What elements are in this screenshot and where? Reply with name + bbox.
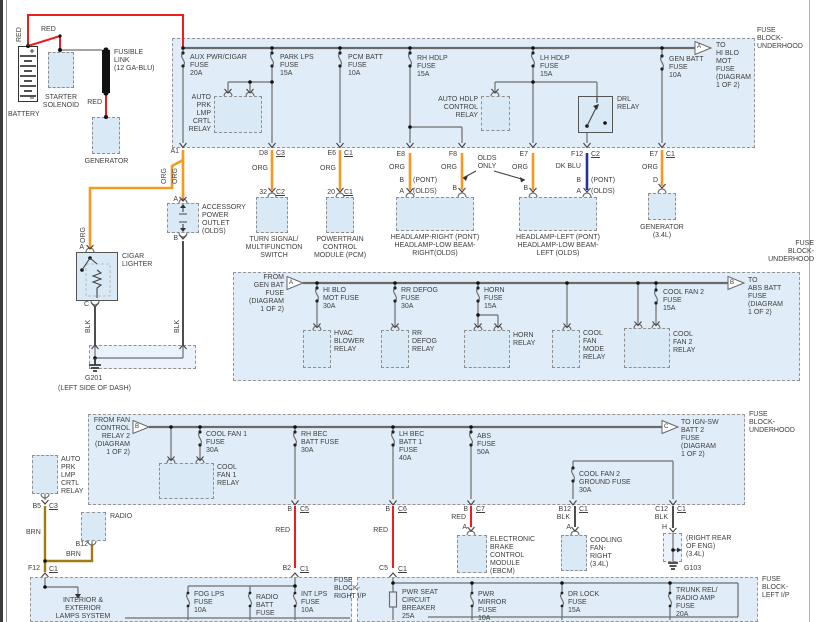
ebcm-label: ELECTRONIC BRAKE CONTROL MODULE (EBCM) <box>490 536 535 576</box>
dkblu-label: DK BLU <box>548 163 581 171</box>
pin-hr-olds: (OLDS) <box>413 188 437 196</box>
red-label-2: RED <box>366 527 388 535</box>
g201-ground-symbol <box>89 358 101 371</box>
pin-32: 32 <box>252 189 267 197</box>
pin-e8: E8 <box>386 151 405 159</box>
offpage-ign-sw: TO IGN-SW BATT 2 FUSE (DIAGRAM 1 OF 2) <box>681 419 719 459</box>
fuse-mirror-label: PWR MIRROR FUSE 10A <box>478 591 506 622</box>
g103-location-label: (RIGHT REAR OF ENG) (3.4L) <box>686 535 731 559</box>
cigar-pin-c: C <box>79 301 89 309</box>
pin-c5: C5 <box>300 506 309 514</box>
pin-e7-gen: E7 <box>638 151 658 159</box>
top-block-title: FUSE BLOCK- UNDERHOOD <box>757 27 803 51</box>
pin-a1: A1 <box>164 148 179 156</box>
blk-label-fan: BLK <box>548 514 570 522</box>
pin-hr-b: B <box>392 177 404 185</box>
battery-symbol <box>20 43 36 98</box>
g103-ground-symbol <box>668 563 678 569</box>
fuse-lock-label: DR LOCK FUSE 15A <box>568 591 599 615</box>
pin-hl-a: A <box>569 188 581 196</box>
auto-hdlp-relay-label: AUTO HDLP CONTROL RELAY <box>428 96 478 120</box>
battery-label: BATTERY <box>8 111 40 119</box>
outlet-pin-a: A <box>168 196 178 204</box>
pin-20: 20 <box>320 189 335 197</box>
cool-fan1-relay-label: COOL FAN 1 RELAY <box>217 464 239 488</box>
mid-block-title: FUSE BLOCK- UNDERHOOD <box>744 240 814 264</box>
fusible-link-label: FUSIBLE LINK (12 GA-BLU) <box>114 49 154 73</box>
headlamp-left-label: HEADLAMP-LEFT (PONT) HEADLAMP-LOW BEAM- … <box>497 234 619 258</box>
pin-c7: C7 <box>476 506 485 514</box>
generator-label: GENERATOR <box>79 158 134 166</box>
red-label-1: RED <box>268 527 290 535</box>
pin-b-c6: B <box>376 506 390 514</box>
pin-a-ebcm: A <box>455 524 467 532</box>
junction-dots <box>26 34 675 588</box>
right-ip-title: FUSE BLOCK- RIGHT I/P <box>334 577 366 601</box>
org-label-e8: ORG <box>377 164 405 172</box>
fuse-park-label: PARK LPS FUSE 15A <box>280 54 314 78</box>
pin-b12-fan: B12 <box>552 506 571 514</box>
cool-fan2-relay-label: COOL FAN 2 RELAY <box>673 331 695 355</box>
interior-lamps-label: INTERIOR & EXTERIOR LAMPS SYSTEM <box>47 597 119 621</box>
rr-defog-relay-label: RR DEFOG RELAY <box>412 330 437 354</box>
fuse-gen-label: GEN BATT FUSE 10A <box>669 56 703 80</box>
cigar-lighter-label: CIGAR LIGHTER <box>122 253 152 269</box>
generator34-label: GENERATOR (3.4L) <box>629 224 695 240</box>
pin-b5: B5 <box>27 503 41 511</box>
fuse-pcm-label: PCM BATT FUSE 10A <box>348 54 383 78</box>
auto-prk-relay-label: AUTO PRK LMP CRTL RELAY <box>171 94 211 134</box>
pin-c12: C12 <box>649 506 668 514</box>
turn-signal-label: TURN SIGNAL/ MULTIFUNCTION SWITCH <box>243 236 305 260</box>
pin-c12-c1: C1 <box>677 506 686 514</box>
cigar-pin-a: A <box>74 244 84 252</box>
fuse-rh-bec-label: RH BEC BATT FUSE 30A <box>301 431 339 455</box>
pin-b2-c1: C1 <box>300 566 309 574</box>
cigar-lighter-symbol <box>80 256 110 298</box>
pin-f8-b: B <box>445 185 457 193</box>
red-label-battery: RED <box>16 27 24 42</box>
brn-wires <box>45 506 92 572</box>
pin-f12-brn: F12 <box>26 565 40 573</box>
radio-label: RADIO <box>110 513 132 521</box>
fuse-fog-label: FOG LPS FUSE 10A <box>194 591 224 615</box>
olds-only-label: OLDS ONLY <box>472 155 502 171</box>
hvac-relay-label: HVAC BLOWER RELAY <box>334 330 364 354</box>
bot-arrow-in-letter: B <box>135 424 139 431</box>
fuse-radio-label: RADIO BATT FUSE <box>256 594 278 618</box>
bot-from-label: FROM FAN CONTROL RELAY 2 (DIAGRAM 1 OF 2… <box>84 417 130 457</box>
drl-relay-label: DRL RELAY <box>617 96 639 112</box>
red-label-3: RED <box>444 514 466 522</box>
fuse-lh-bec-label: LH BEC BATT 1 FUSE 40A <box>399 431 424 463</box>
org-label-v1: ORG <box>161 168 169 184</box>
pin-b2: B2 <box>275 565 291 573</box>
org-label-f8: ORG <box>429 164 457 172</box>
outlet-pin-symbols <box>179 204 187 232</box>
g201-label: G201 <box>85 375 102 383</box>
pin-e6-c1: C1 <box>344 150 353 158</box>
left-ip-title: FUSE BLOCK- LEFT I/P <box>762 576 790 600</box>
mid-arrow-in-letter: A <box>289 280 293 287</box>
pin-e7-gen-c1: C1 <box>666 151 675 159</box>
fuse-rh-label: RH HDLP FUSE 15A <box>417 55 448 79</box>
org-label-d8: ORG <box>240 165 268 173</box>
fuse-cf1-label: COOL FAN 1 FUSE 30A <box>206 431 247 455</box>
red-label-solenoid: RED <box>41 26 56 34</box>
fuse-cf2-label: COOL FAN 2 FUSE 15A <box>663 289 704 313</box>
org-label-e6: ORG <box>308 165 336 173</box>
offpage-hi-blo: TO HI BLO MOT FUSE (DIAGRAM 1 OF 2) <box>716 42 751 90</box>
pin-20-c1: C1 <box>344 189 353 197</box>
red-label-link: RED <box>84 99 102 107</box>
pin-gen-d: D <box>646 177 658 185</box>
org-label-v2: ORG <box>172 168 180 184</box>
bot-arrow-out-letter: C <box>664 424 668 431</box>
offpage-abs-batt: TO ABS BATT FUSE (DIAGRAM 1 OF 2) <box>748 277 783 317</box>
pin-e7: E7 <box>509 151 528 159</box>
pin-b12-radio: B12 <box>71 541 88 549</box>
fuse-defog-label: RR DEFOG FUSE 30A <box>401 287 438 311</box>
gray-wires <box>45 48 738 620</box>
fuse-horn-label: HORN FUSE 15A <box>484 287 505 311</box>
fuse-hiblo-label: HI BLO MOT FUSE 30A <box>323 287 359 311</box>
headlamp-right-label: HEADLAMP-RIGHT (PONT) HEADLAMP-LOW BEAM-… <box>374 234 496 258</box>
starter-solenoid-label: STARTER SOLENOID <box>36 94 86 110</box>
pin-h: H <box>655 524 667 532</box>
org-label-gen: ORG <box>630 164 658 172</box>
brn-label-2: BRN <box>66 551 81 559</box>
pin-c5b-c1: C1 <box>398 566 407 574</box>
brn-label-1: BRN <box>26 529 41 537</box>
pin-c6: C6 <box>398 506 407 514</box>
pin-e6: E6 <box>317 150 336 158</box>
pin-f12: F12 <box>563 151 583 159</box>
connector-arcs <box>41 92 666 545</box>
mid-from-label: FROM GEN BAT FUSE (DIAGRAM 1 OF 2) <box>234 274 284 314</box>
pin-b12-c1: C1 <box>579 506 588 514</box>
outlet-pin-b: B <box>168 235 178 243</box>
pin-c3: C3 <box>276 150 285 158</box>
pin-hr-pont: (PONT) <box>413 177 437 185</box>
org-label-cigar: ORG <box>80 227 88 243</box>
pin-b-c5: B <box>278 506 292 514</box>
fuse-abs-label: ABS FUSE 50A <box>477 433 496 457</box>
fusible-link-bar <box>102 47 110 95</box>
wiring-diagram: BATTERY RED RED RED STARTER SOLENOID FUS… <box>0 0 817 622</box>
fuse-trunk-label: TRUNK REL/ RADIO AMP FUSE 20A <box>676 587 718 619</box>
fuse-int-label: INT LPS FUSE 10A <box>301 591 327 615</box>
offpage-letter-a: A <box>697 44 701 51</box>
olds-only-arrows <box>463 171 525 183</box>
blk-label-g103: BLK <box>646 514 668 522</box>
breaker-seat-label: PWR SEAT CIRCUIT BREAKER 25A <box>402 589 438 621</box>
g103-label: G103 <box>684 565 701 573</box>
mid-arrow-out-letter: B <box>730 280 734 287</box>
org-label-e7: ORG <box>500 164 528 172</box>
pcm-label: POWERTRAIN CONTROL MODULE (PCM) <box>309 236 371 260</box>
pin-e7-b: B <box>516 185 528 193</box>
cool-fan-mode-relay-label: COOL FAN MODE RELAY <box>583 330 605 362</box>
drl-relay-symbol <box>585 96 607 128</box>
g201-location-label: (LEFT SIDE OF DASH) <box>58 385 131 393</box>
pin-f8: F8 <box>438 151 457 159</box>
bot-block-title: FUSE BLOCK- UNDERHOOD <box>749 411 795 435</box>
cooling-fan-label: COOLING FAN- RIGHT (3.4L) <box>590 537 622 569</box>
horn-relay-label: HORN RELAY <box>513 332 535 348</box>
fuse-lh-label: LH HDLP FUSE 15A <box>540 55 570 79</box>
auto-prk-relay2-label: AUTO PRK LMP CRTL RELAY <box>61 456 83 496</box>
pin-a-fan: A <box>559 524 571 532</box>
pin-c2: C2 <box>276 189 285 197</box>
pin-f12-c1: C1 <box>49 566 58 574</box>
pin-hr-a: A <box>392 188 404 196</box>
blk-label-outlet: BLK <box>174 320 182 333</box>
outlet-label: ACCESSORY POWER OUTLET (OLDS) <box>202 204 246 236</box>
pin-d8: D8 <box>249 150 268 158</box>
fuse-cf2-gnd-label: COOL FAN 2 GROUND FUSE 30A <box>579 471 631 495</box>
pin-c5b: C5 <box>372 565 388 573</box>
fuse-aux-label: AUX PWR/CIGAR FUSE 20A <box>190 54 247 78</box>
pin-b-c7: B <box>454 506 468 514</box>
pin-f12-c2: C2 <box>591 151 600 159</box>
pin-hl-pont: (PONT) <box>591 177 615 185</box>
pin-hl-b: B <box>569 177 581 185</box>
pin-b5-c3: C3 <box>49 503 58 511</box>
pin-hl-olds: (OLDS) <box>591 188 615 196</box>
blk-label-cigar: BLK <box>85 320 93 333</box>
